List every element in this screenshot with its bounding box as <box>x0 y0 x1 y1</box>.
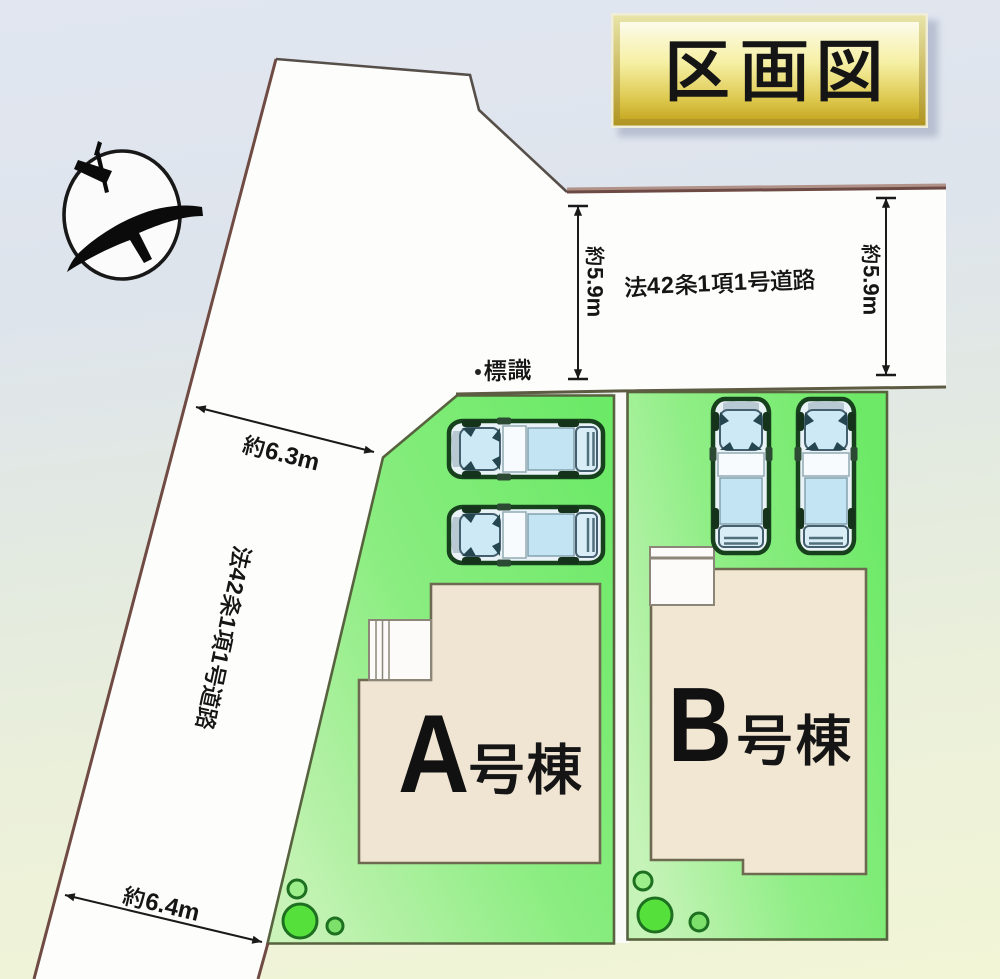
svg-text:4: 4 <box>646 272 660 299</box>
svg-text:5.9m: 5.9m <box>582 267 607 317</box>
svg-text:5.9m: 5.9m <box>858 265 883 315</box>
svg-text:B: B <box>668 665 732 783</box>
svg-text:1: 1 <box>697 270 711 297</box>
svg-text:2: 2 <box>660 272 674 299</box>
svg-text:A: A <box>398 693 469 817</box>
svg-text:1: 1 <box>733 269 747 296</box>
